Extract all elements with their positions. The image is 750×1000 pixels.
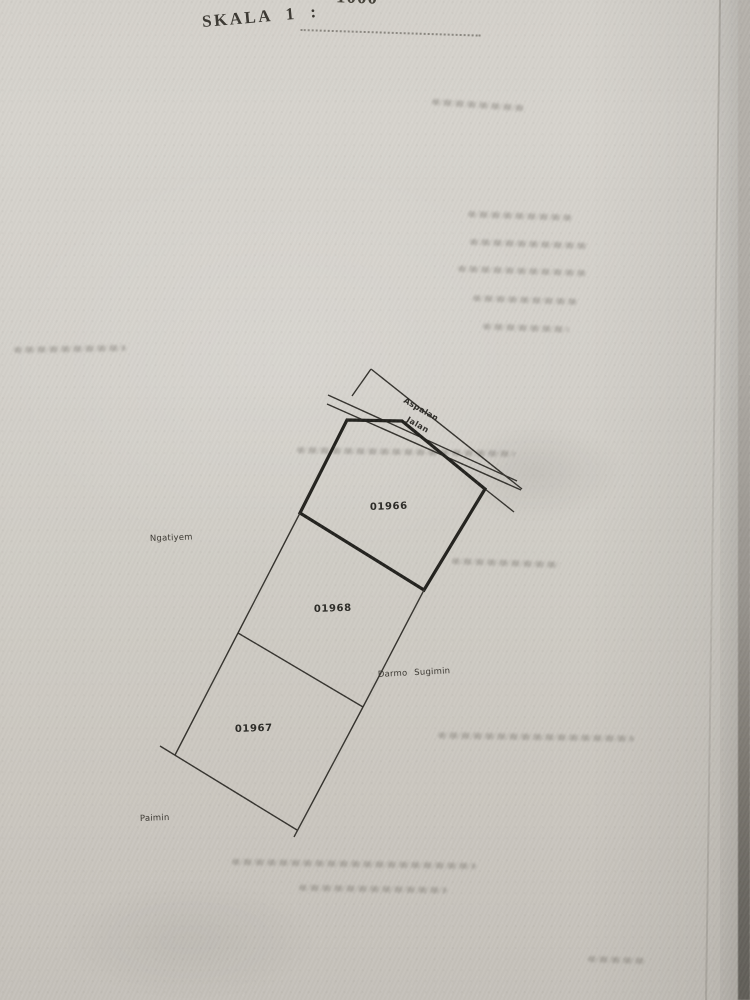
- boundary-extension-line: [485, 489, 514, 512]
- parcel-01968-right-edge: [363, 590, 424, 707]
- parcel-01968-bottom-edge: [238, 633, 363, 707]
- road-fork-long-edge: [371, 369, 522, 489]
- parcel-number-01968: 01968: [314, 603, 352, 615]
- parcel-number-01966: 01966: [370, 501, 408, 513]
- parcel-01968-left-edge: [238, 513, 300, 633]
- road-line-lower: [327, 404, 521, 490]
- parcel-01967-right-edge: [294, 707, 363, 837]
- owner-name-darmo-sugimin: Darmo Sugimin: [378, 666, 451, 680]
- parcel-sketch-map: Aspalan Jalan 01966 01968 01967 Ngatiyem…: [0, 0, 750, 1000]
- parcel-01967-bottom-edge: [160, 746, 297, 830]
- parcel-01967-left-edge: [175, 633, 238, 755]
- parcel-number-01967: 01967: [235, 723, 273, 735]
- owner-name-ngatiyem: Ngatiyem: [150, 533, 193, 544]
- road-fork-left-edge: [352, 369, 371, 396]
- owner-name-paimin: Paimin: [140, 813, 170, 824]
- photographed-document-page: 1000 SKALA 1 : Aspalan Jalan: [0, 0, 750, 1000]
